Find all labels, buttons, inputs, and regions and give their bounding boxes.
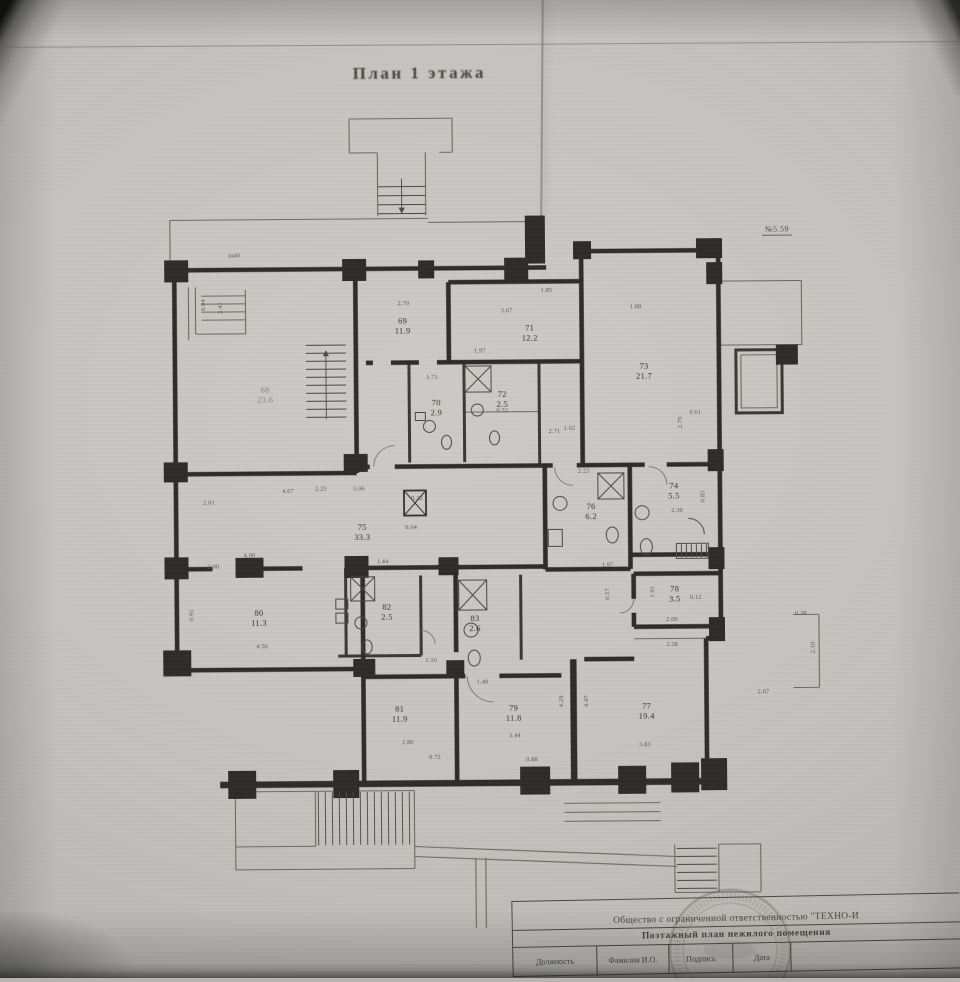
paper-bottom-edge	[0, 963, 960, 978]
room-area: 11.8	[506, 713, 522, 723]
room-area: 11.3	[251, 618, 267, 628]
room-area: 6.2	[585, 512, 597, 522]
room-area: 2.6	[469, 624, 481, 634]
dimension-label: 3.44	[509, 732, 521, 739]
dimension-label: 2.41	[217, 302, 224, 314]
room-area: 21.7	[636, 371, 652, 381]
room-area: 12.2	[522, 333, 538, 343]
dimension-label: 4.67	[282, 488, 294, 495]
room-area: 33.3	[354, 532, 370, 542]
dimension-label: 3.67	[501, 307, 513, 314]
room-label: 6911.9	[395, 317, 411, 336]
room-label: 7719.4	[639, 702, 655, 721]
room-label: 7321.7	[636, 362, 652, 381]
dimension-label: 2.25	[315, 486, 327, 493]
dimension-label: 0.22	[411, 495, 423, 502]
dimension-label: 1.97	[602, 561, 614, 568]
dimension-label: 1.97	[474, 347, 486, 354]
room-label: 822.5	[381, 603, 393, 622]
dimension-label: 0.12	[690, 594, 702, 601]
dimension-label: 1.91	[649, 586, 656, 598]
dimension-label: 1.02	[563, 425, 575, 432]
room-area: 23.6	[257, 395, 273, 405]
floor-plan-drawing: План 1 этажа №5.59	[0, 0, 960, 982]
room-label: 7533.3	[354, 523, 370, 542]
dimension-label: 4.56	[256, 643, 268, 650]
room-area: 3.5	[669, 594, 681, 604]
room-area: 2.5	[381, 612, 393, 622]
dimension-label: 0.88	[526, 756, 538, 763]
dimension-label: 2.86	[402, 739, 414, 746]
dimension-label: 1.88	[630, 303, 642, 310]
dimension-label: 2.10	[810, 641, 817, 653]
dimension-label: 2.71	[549, 428, 561, 435]
room-label: 745.5	[668, 481, 680, 500]
dimension-label: 0.64	[405, 524, 417, 531]
room-area: 5.5	[668, 491, 680, 501]
dark-corner-top-right	[885, 0, 960, 95]
dimension-label: 1.44	[377, 558, 389, 565]
room-area: 11.9	[395, 326, 411, 336]
floor-plan-svg	[0, 0, 960, 982]
room-label: 783.5	[669, 584, 681, 603]
dimension-label: 3.83	[639, 741, 651, 748]
room-label: 7112.2	[522, 324, 538, 343]
dimension-label: 2.30	[671, 507, 683, 514]
dimension-label: 5.06	[353, 485, 365, 492]
dimension-label: 0.38	[795, 610, 807, 617]
dimension-label: 0.52	[496, 407, 508, 414]
dimension-label: 1.71	[426, 374, 438, 381]
dimension-label: 4.90	[243, 552, 255, 559]
room-label: 8011.3	[251, 609, 267, 628]
room-area: 19.4	[639, 711, 655, 721]
dimension-label: 0.91	[188, 609, 195, 621]
dimension-label: 2.00	[666, 616, 678, 623]
room-label: 832.6	[469, 614, 481, 633]
room-label: 766.2	[585, 502, 597, 521]
dimension-label: 2.01	[203, 500, 215, 507]
room-label: 6823.6	[257, 386, 273, 405]
dark-corner-top-left	[0, 0, 95, 160]
dimension-label: 2.23	[578, 468, 590, 475]
dimension-label: 0.72	[429, 754, 441, 761]
dimension-label: 2.28	[666, 641, 678, 648]
dimension-label: ш40	[228, 252, 240, 259]
dimension-label: 0.85	[699, 490, 706, 502]
dimension-label: 4.29	[558, 695, 565, 707]
dimension-label: 1.85	[540, 287, 552, 294]
room-label: 8111.9	[392, 705, 408, 724]
dimension-label: 2.79	[677, 416, 684, 428]
dimension-label: 0.94	[200, 299, 207, 311]
dimension-label: 4.47	[583, 695, 590, 707]
dimension-label: 2.70	[398, 300, 410, 307]
room-area: 2.9	[431, 408, 443, 418]
dimension-label: 2.67	[758, 688, 770, 695]
room-area: 11.9	[392, 714, 408, 724]
dimension-label: 2.00	[208, 564, 220, 571]
room-label: 722.5	[496, 390, 508, 409]
dimension-label: 1.40	[476, 678, 488, 685]
dimension-label: 1.16	[425, 657, 437, 664]
dimension-label: 0.61	[689, 409, 701, 416]
dimension-label: 0.57	[604, 588, 611, 600]
thin-lines	[169, 115, 821, 930]
room-label: 7911.8	[506, 704, 522, 723]
room-label: 702.9	[430, 398, 442, 417]
